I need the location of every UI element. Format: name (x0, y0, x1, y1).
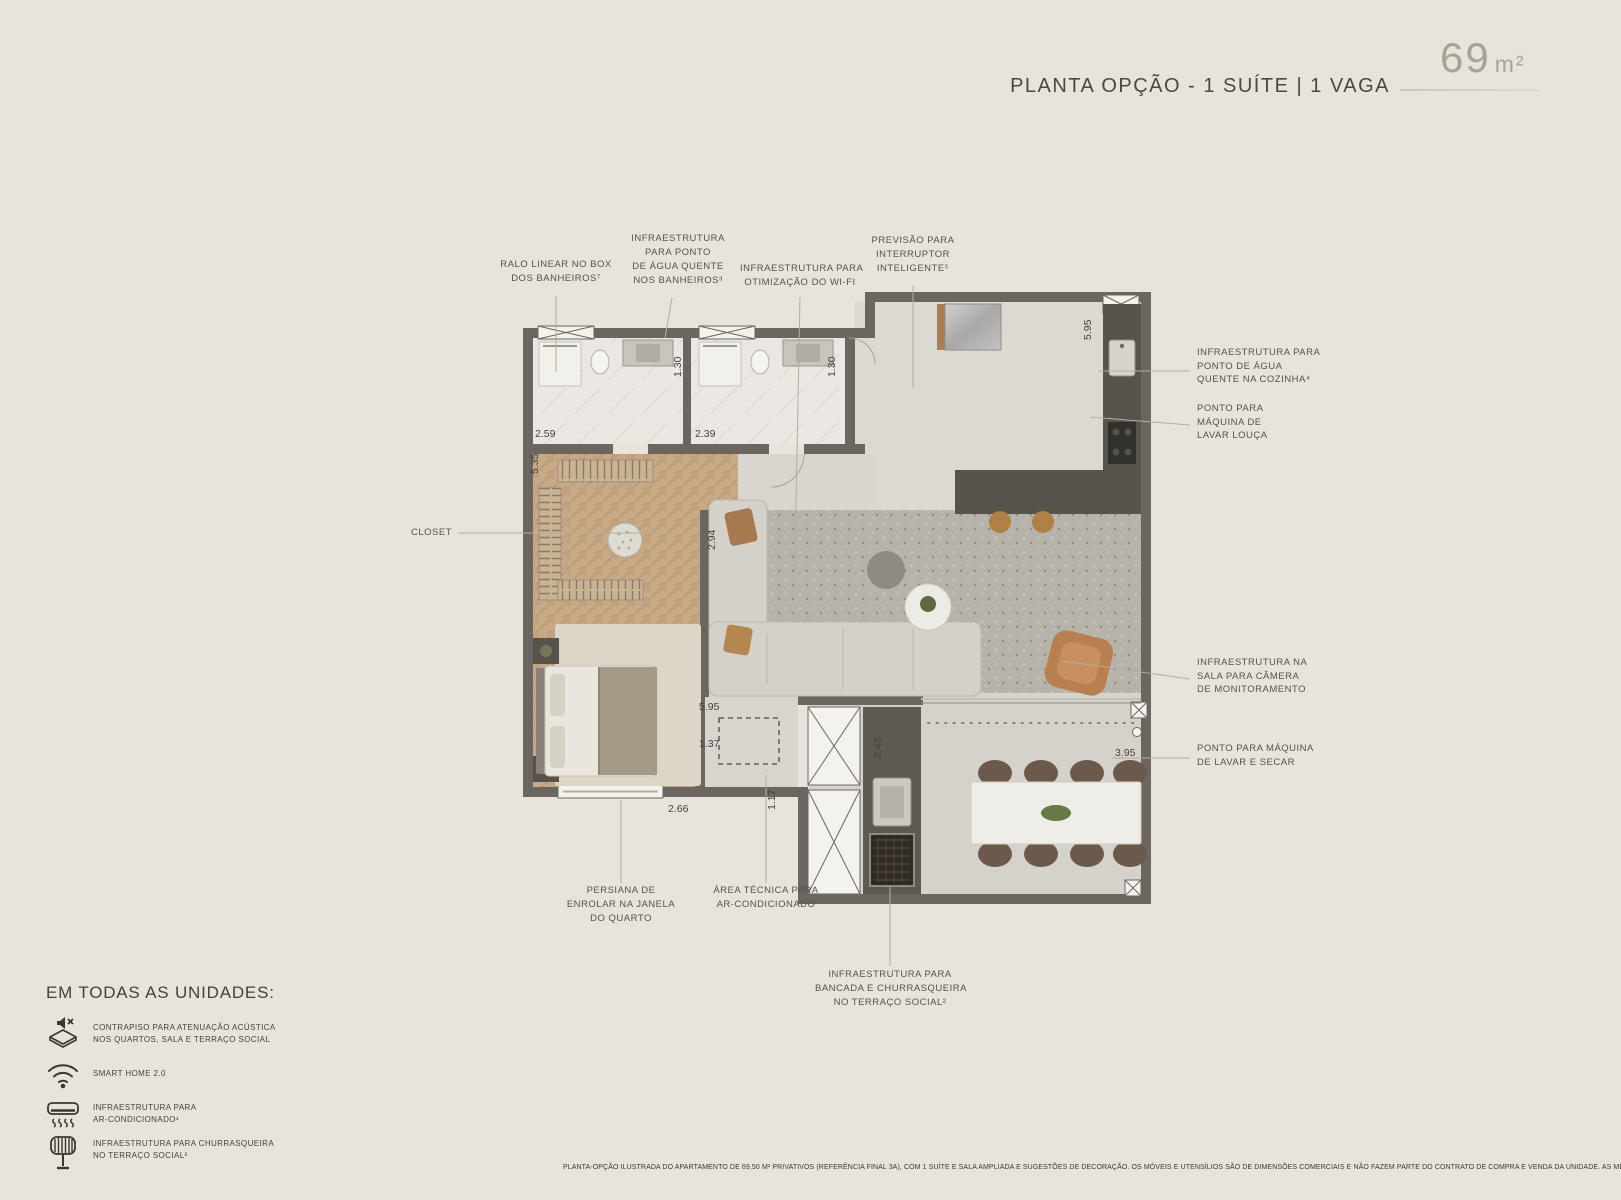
callout-lavar-secar: PONTO PARA MÁQUINA DE LAVAR E SECAR (1197, 742, 1314, 769)
callout-camera-monitoramento: INFRAESTRUTURA NA SALA PARA CÂMERA DE MO… (1197, 656, 1307, 697)
area-value: 69 (1440, 34, 1491, 82)
callout-area-tecnica: ÁREA TÉCNICA PARA AR-CONDICIONADO (706, 884, 826, 912)
dim-tech-area-width: 1.37 (699, 738, 720, 750)
callout-closet: CLOSET (352, 526, 452, 540)
acoustic-floor-icon (45, 1014, 81, 1050)
terrace-fixtures (808, 699, 1147, 894)
door-swing-arcs (615, 338, 875, 487)
callout-wifi: INFRAESTRUTURA PARA OTIMIZAÇÃO DO WI-FI (740, 262, 860, 290)
island-stool-2 (1032, 511, 1054, 533)
bed-blanket (599, 667, 657, 775)
wardrobe-left (539, 488, 561, 600)
ac-condenser-dashed-box (719, 718, 779, 764)
bathroom-1-floor (533, 338, 683, 444)
floor-plan-page: PLANTA OPÇÃO - 1 SUÍTE | 1 VAGA 69 m² (0, 0, 1621, 1200)
bathroom-2-window (699, 326, 755, 339)
legend-item-contrapiso: CONTRAPISO PARA ATENUAÇÃO ACÚSTICA NOS Q… (45, 1014, 276, 1050)
sink-2 (796, 344, 820, 362)
area-unit: m² (1495, 51, 1526, 78)
bed-pillow-1 (550, 674, 565, 716)
legend-heading: EM TODAS AS UNIDADES: (46, 983, 275, 1003)
dim-closet-depth: 5.35 (529, 453, 541, 474)
legend-item-churrasqueira: INFRAESTRUTURA PARA CHURRASQUEIRA NO TER… (45, 1134, 274, 1172)
page-title: PLANTA OPÇÃO - 1 SUÍTE | 1 VAGA (990, 75, 1390, 98)
callout-ralo-linear: RALO LINEAR NO BOX DOS BANHEIROS⁷ (496, 258, 616, 286)
closet-pouf (608, 523, 642, 557)
dining-table (971, 782, 1141, 844)
kitchen-corner-window (1103, 295, 1139, 313)
bed-pillow-2 (550, 726, 565, 768)
kitchen-island (955, 470, 1141, 514)
terrace-corner-vents (1125, 702, 1147, 896)
bathroom-1-window (538, 326, 594, 339)
closet-furniture (539, 460, 653, 600)
island-stool-1 (989, 511, 1011, 533)
cooktop (1108, 422, 1136, 464)
bed-headboard (536, 668, 545, 774)
leader-camera (1063, 661, 1190, 679)
technical-area (719, 718, 779, 764)
wardrobe-top (558, 460, 653, 482)
sink-1 (636, 344, 660, 362)
kitchen-sink (1109, 340, 1135, 376)
dim-terrace-counter: 2.43 (872, 737, 884, 758)
shower-box-2 (699, 342, 741, 386)
coffee-table-stone (867, 551, 905, 589)
armchair-cushion (1055, 640, 1103, 687)
living-room-furniture (709, 500, 1116, 699)
terrace-floor (808, 695, 1141, 894)
dim-bedroom-width: 2.66 (668, 803, 689, 815)
shower-box-1 (539, 342, 581, 386)
dim-bath1-width: 2.59 (535, 428, 556, 440)
leader-wifi (795, 297, 800, 558)
dim-terrace-width: 3.95 (1115, 747, 1136, 759)
walls (523, 292, 1151, 904)
living-room-floor (709, 454, 1141, 695)
wifi-icon (45, 1058, 81, 1090)
terrace-sink-bowl (880, 786, 904, 818)
terrace-sink (873, 778, 911, 826)
vanity-2 (783, 340, 833, 366)
callout-churrasqueira-terraco: INFRAESTRUTURA PARA BANCADA E CHURRASQUE… (815, 968, 965, 1010)
kitchen-fixtures (937, 304, 1141, 533)
callout-agua-quente-cozinha: INFRAESTRUTURA PARA PONTO DE ÁGUA QUENTE… (1197, 346, 1320, 387)
title-divider-line (1400, 89, 1538, 91)
dim-bath1-depth: 1.30 (672, 356, 684, 377)
barbecue-grill (870, 834, 914, 886)
area-badge: 69 m² (1440, 34, 1526, 82)
living-room-rug (765, 510, 1141, 693)
callout-lavar-louca: PONTO PARA MÁQUINA DE LAVAR LOUÇA (1197, 402, 1268, 443)
legend-item-smart-home: SMART HOME 2.0 (45, 1058, 166, 1090)
toilet-2 (751, 350, 769, 374)
coffee-table-plant (920, 596, 936, 612)
dim-living-inner-wall: 2.94 (706, 529, 718, 550)
table-centerpiece (1041, 805, 1071, 821)
dining-chairs-top (978, 760, 1147, 786)
disclaimer-text: PLANTA-OPÇÃO ILUSTRADA DO APARTAMENTO DE… (563, 1164, 1563, 1171)
bedroom-window (558, 785, 663, 798)
armchair (1042, 627, 1116, 698)
fridge (945, 304, 1001, 350)
dim-kitchen-side: 5.95 (1082, 319, 1094, 340)
closet-bedroom-wood-floor (533, 454, 738, 787)
callout-agua-quente-banheiros: INFRAESTRUTURA PARA PONTO DE ÁGUA QUENTE… (618, 232, 738, 288)
nightstand-1 (533, 638, 559, 664)
leader-agua-banheiros (665, 298, 672, 338)
floor-plan: 2.59 1.30 2.39 1.30 5.35 5.95 2.94 5.95 … (503, 282, 1153, 912)
bedroom-furniture (533, 624, 701, 786)
kitchen-floor (855, 302, 1141, 514)
dining-chairs-bottom (978, 841, 1147, 867)
toilet-1 (591, 350, 609, 374)
dim-bath2-depth: 1.30 (826, 356, 838, 377)
sofa-pillow-1 (724, 507, 758, 546)
air-conditioner-icon (45, 1098, 81, 1130)
bathroom-2-floor (691, 338, 845, 444)
sofa-chaise (709, 500, 767, 696)
legend-item-ar-condicionado: INFRAESTRUTURA PARA AR-CONDICIONADO¹ (45, 1098, 196, 1130)
nightstand-2 (533, 756, 559, 782)
sofa-main (709, 622, 981, 696)
service-shafts (808, 707, 860, 894)
technical-area-floor (705, 695, 798, 787)
bedroom-rug (555, 624, 701, 786)
barbecue-icon (45, 1134, 81, 1172)
callout-interruptor-inteligente: PREVISÃO PARA INTERRUPTOR INTELIGENTE⁵ (853, 234, 973, 276)
dim-tech-area-height: 1.17 (766, 789, 778, 810)
washer-point-marker (1133, 728, 1142, 737)
kitchen-counter (1103, 304, 1141, 514)
vanity-1 (623, 340, 673, 366)
fridge-panel (937, 304, 945, 350)
leader-lavar-louca (1090, 417, 1190, 425)
bed-mattress (545, 666, 657, 776)
dimension-labels: 2.59 1.30 2.39 1.30 5.35 5.95 2.94 5.95 … (529, 319, 1136, 815)
room-floors (533, 302, 1141, 894)
windows (538, 295, 1147, 896)
wardrobe-bottom (558, 580, 643, 600)
dim-living-width: 5.95 (699, 701, 720, 713)
callout-persiana: PERSIANA DE ENROLAR NA JANELA DO QUARTO (561, 884, 681, 926)
bathroom-fixtures (539, 340, 833, 386)
sofa-pillow-2 (723, 624, 753, 656)
coffee-table-round (905, 584, 951, 630)
dim-bath2-width: 2.39 (695, 428, 716, 440)
barbecue-counter (863, 707, 921, 894)
